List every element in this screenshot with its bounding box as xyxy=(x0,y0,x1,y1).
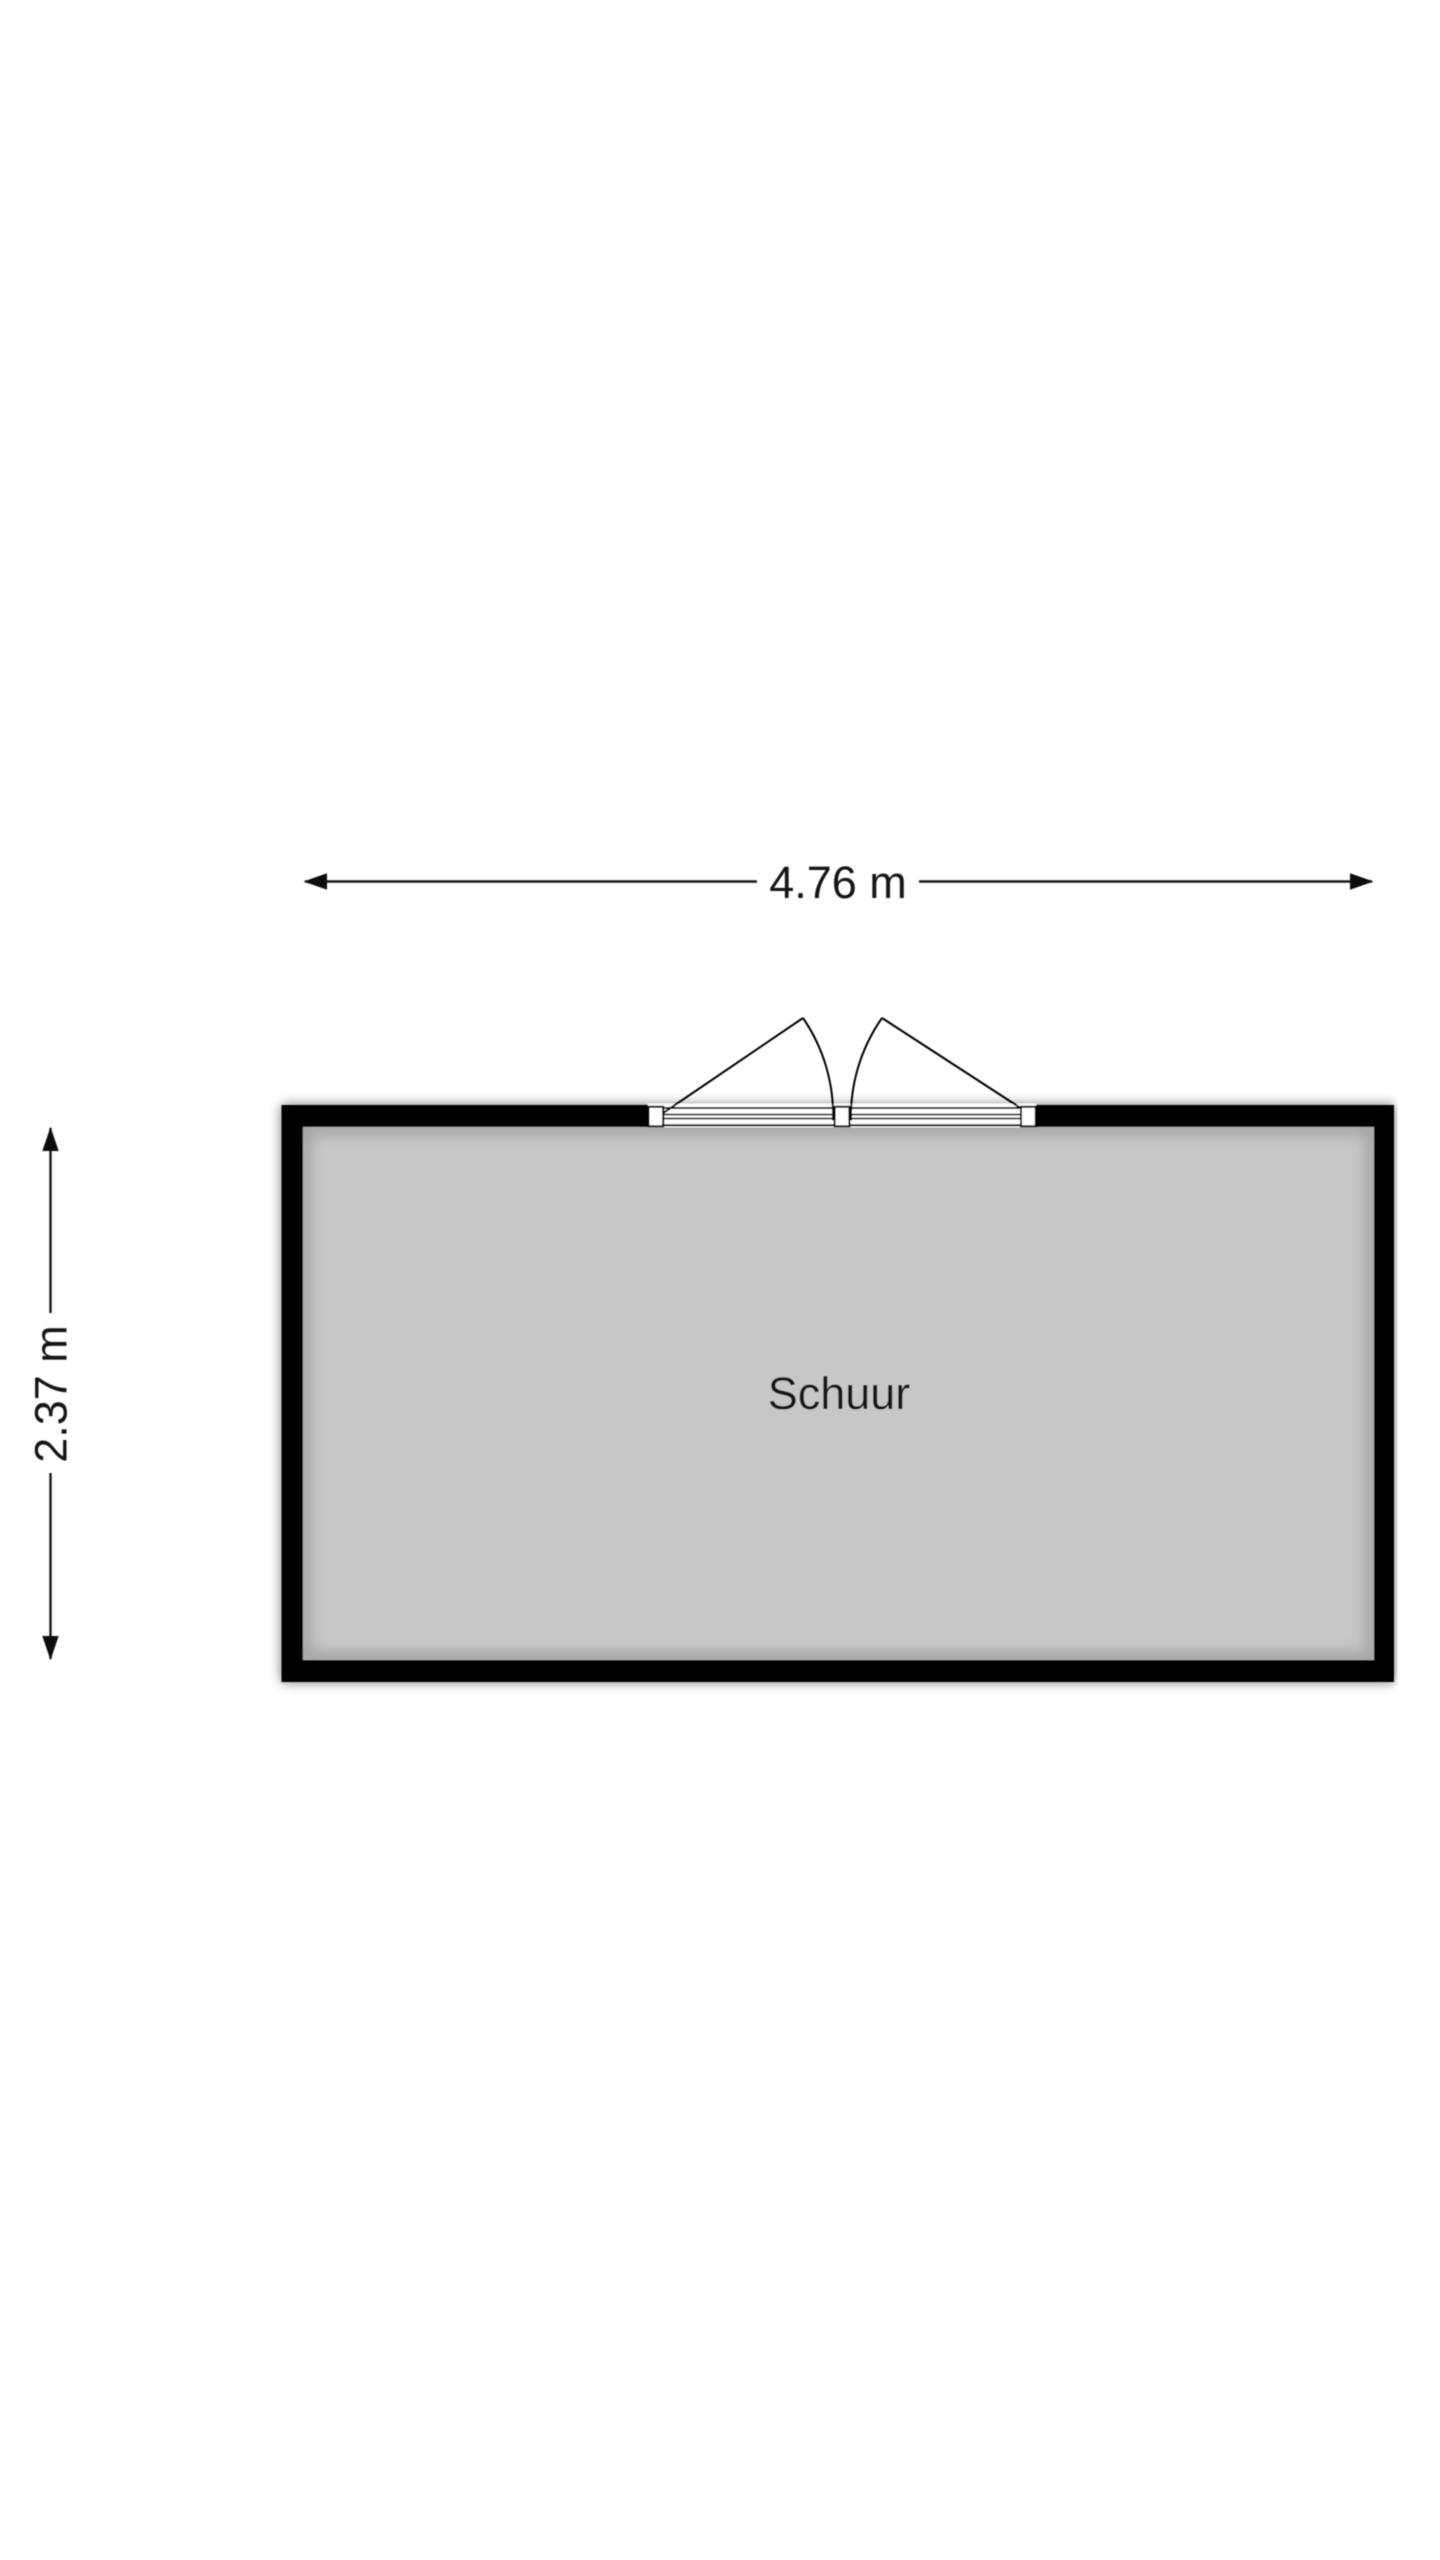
svg-text:2.37 m: 2.37 m xyxy=(25,1325,76,1463)
svg-text:Schuur: Schuur xyxy=(768,1368,911,1419)
svg-text:4.76 m: 4.76 m xyxy=(769,857,907,908)
